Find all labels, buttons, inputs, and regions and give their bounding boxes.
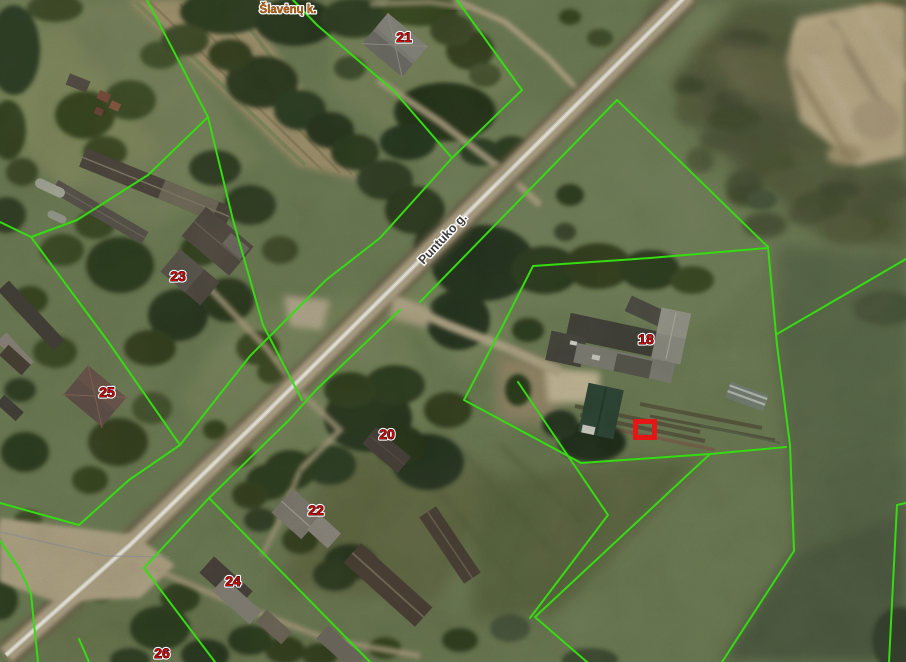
svg-text:22: 22	[308, 502, 324, 518]
svg-text:20: 20	[379, 426, 395, 442]
svg-text:Šlavėnų k.: Šlavėnų k.	[260, 3, 317, 16]
svg-text:25: 25	[99, 384, 115, 400]
svg-text:24: 24	[225, 573, 241, 589]
svg-text:23: 23	[170, 268, 186, 284]
svg-text:21: 21	[396, 29, 412, 45]
svg-text:18: 18	[638, 331, 654, 347]
svg-text:26: 26	[154, 645, 170, 661]
